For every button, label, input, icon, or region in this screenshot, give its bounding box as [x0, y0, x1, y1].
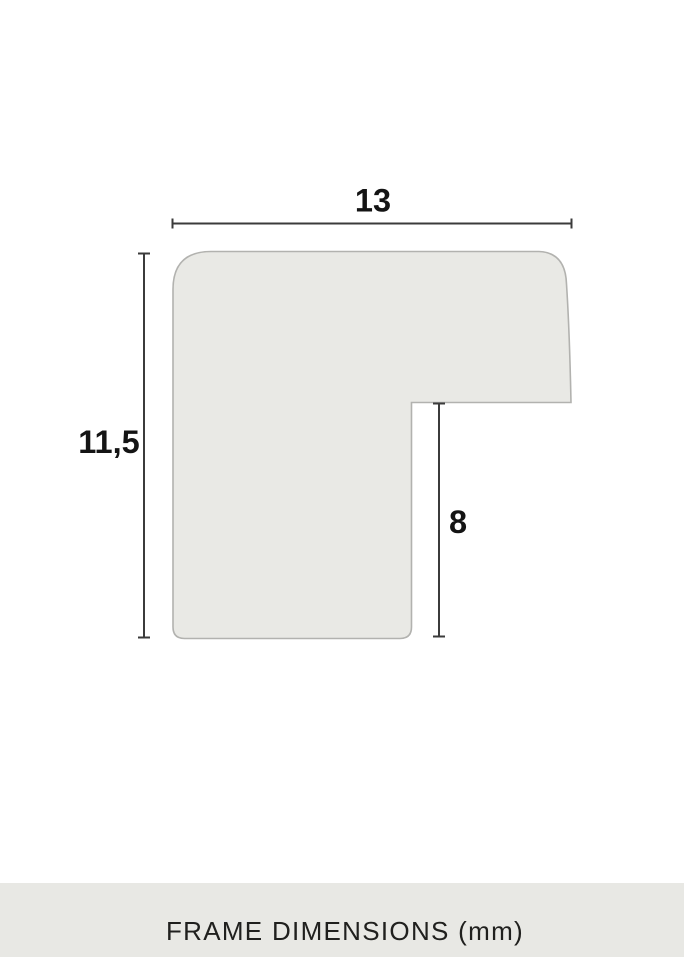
svg-text:13: 13 [355, 183, 391, 219]
svg-text:11,5: 11,5 [78, 424, 139, 460]
svg-text:8: 8 [449, 504, 467, 540]
